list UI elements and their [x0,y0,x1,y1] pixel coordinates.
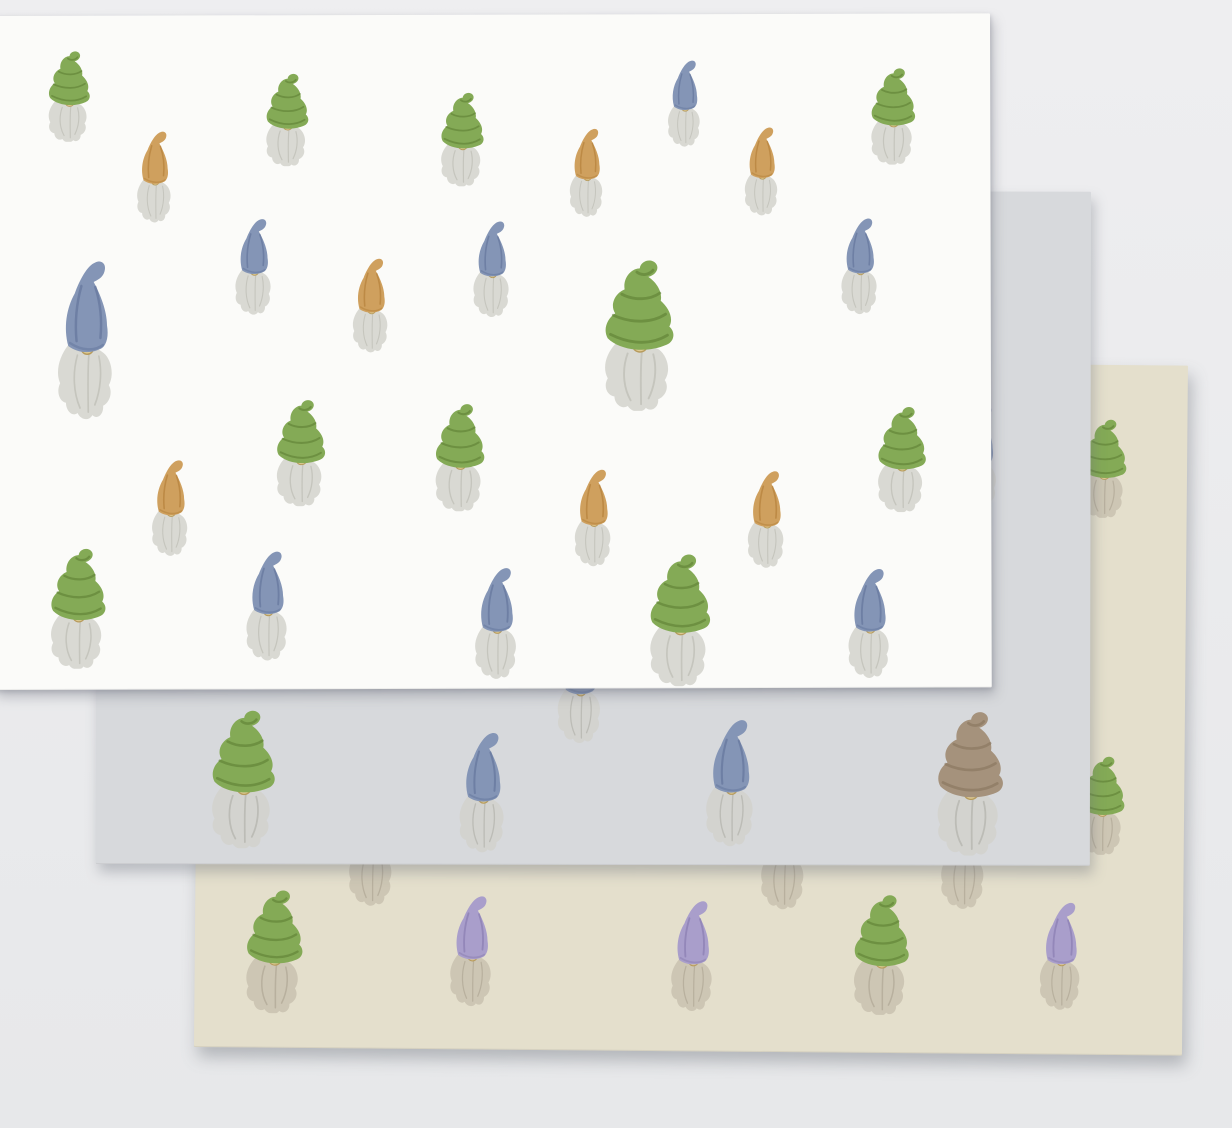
gnome-blue-hat [848,569,888,678]
gnome-orange-hat [745,127,778,215]
gnome-green-hat [435,404,484,512]
gnome-green-hat [605,260,674,411]
gnome-orange-hat [353,259,388,353]
gnome-blue-hat [475,568,516,679]
gnome-blue-hat [706,720,753,846]
gnome-green-hat [49,51,90,142]
gnome-green-hat [878,407,926,513]
gnome-green-hat [441,93,484,187]
gnome-blue-hat [246,552,286,661]
gnome-purple-hat [671,901,712,1011]
gnome-green-hat [266,74,308,167]
gnome-blue-hat [460,733,504,852]
gnome-orange-hat [570,129,603,217]
gnome-orange-hat [748,471,784,568]
gnome-green-hat [650,554,710,687]
gnome-blue-hat [235,219,270,315]
gnome-green-hat [854,895,910,1016]
gnome-purple-hat [450,896,491,1006]
gnome-green-hat [246,890,303,1014]
gnome-orange-hat [152,460,187,556]
gnome-green-hat [277,400,326,507]
gnome-purple-hat [1040,903,1080,1010]
gnome-blue-hat [473,221,508,317]
gnome-green-hat [871,68,915,165]
gnome-orange-hat [575,470,611,567]
gnome-orange-hat [137,132,171,223]
gnome-blue-hat [668,61,700,147]
gnome-green-hat [51,549,106,670]
gnome-blue-hat [58,261,112,419]
wrapping-paper-sheet-white [0,13,992,690]
gnome-pattern-white [0,13,992,690]
gnome-taupe-hat [938,712,1004,856]
product-photo [0,0,1232,1128]
gnome-blue-hat [841,219,876,315]
gnome-green-hat [212,711,275,849]
